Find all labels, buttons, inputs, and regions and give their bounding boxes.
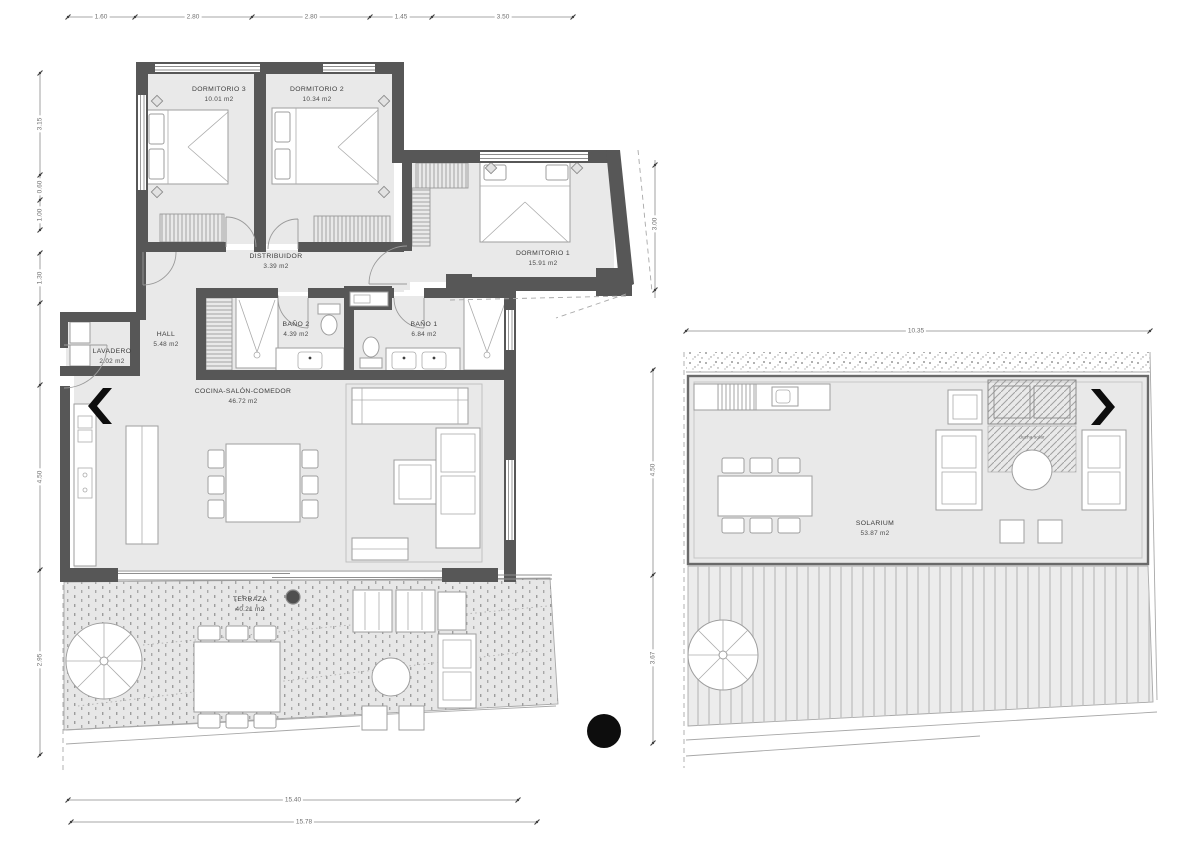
terrace-marker-circle <box>286 590 300 604</box>
round-table <box>372 658 410 696</box>
wardrobe <box>412 188 430 246</box>
section-marker-dot <box>587 714 621 748</box>
bed-dormitorio-1 <box>480 162 570 242</box>
sun-lounger <box>353 590 392 632</box>
lounge-sofa <box>936 430 982 510</box>
terraza-dining-table <box>194 642 280 712</box>
solarium-floor <box>651 329 1158 769</box>
floor-plan: DORMITORIO 3 10.01 m2 DORMITORIO 2 10.34… <box>0 0 1200 847</box>
stair-hatch <box>718 384 756 410</box>
wardrobe <box>160 214 224 242</box>
gravel-strip <box>686 352 1150 372</box>
sun-lounger <box>396 590 435 632</box>
floor-plan-drawing <box>0 0 1200 847</box>
pergola-hatched <box>988 380 1076 424</box>
counter <box>694 384 830 410</box>
round-table <box>1012 450 1052 490</box>
spiral-stair-solarium <box>688 620 758 690</box>
lounge-sofa <box>1082 430 1126 510</box>
kitchen-island <box>126 426 158 544</box>
solarium-dining-table <box>718 476 812 516</box>
chaise-lounge <box>438 634 476 708</box>
dining-set <box>208 444 318 522</box>
wardrobe <box>416 163 468 188</box>
bed-dormitorio-2 <box>272 108 378 184</box>
kitchen-counter <box>74 404 96 566</box>
bed-dormitorio-3 <box>146 110 228 184</box>
wardrobe <box>314 216 390 243</box>
spiral-stair-terraza <box>66 623 142 699</box>
